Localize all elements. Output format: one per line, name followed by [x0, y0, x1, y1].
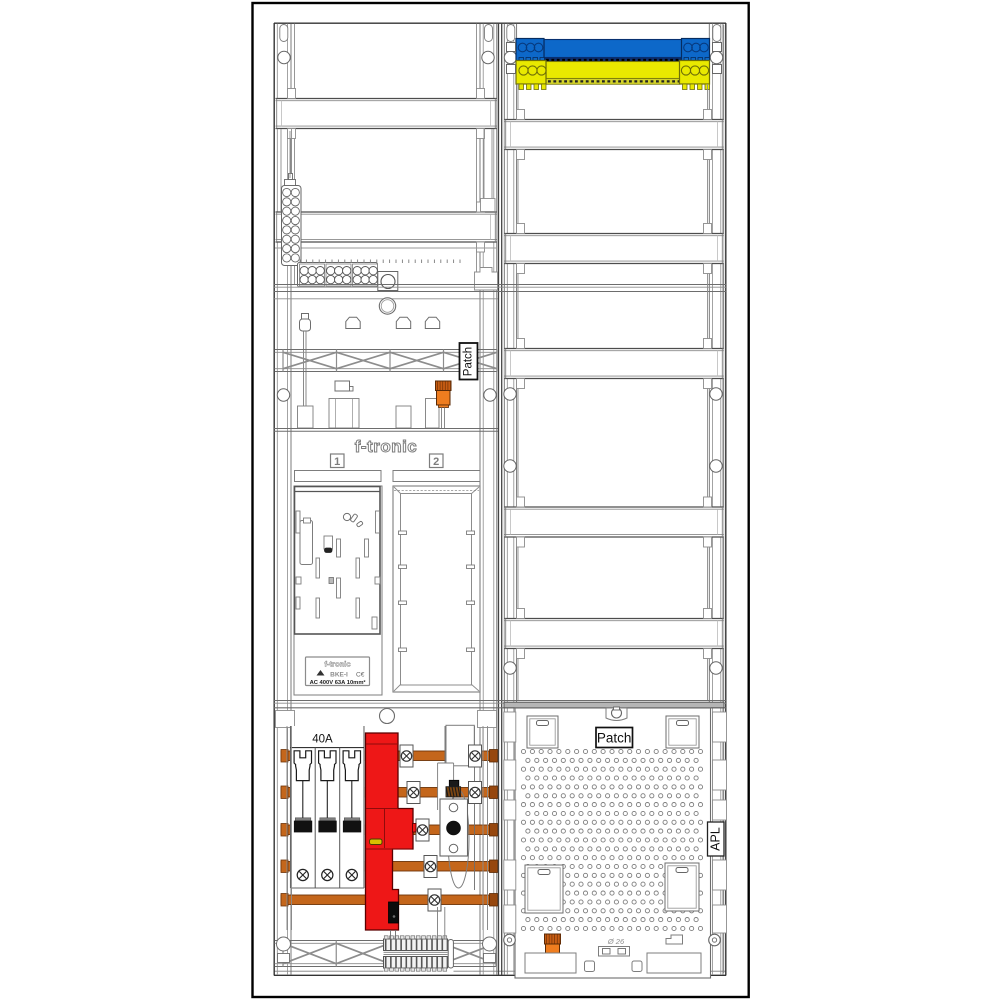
- svg-text:Patch: Patch: [597, 731, 632, 746]
- svg-text:2: 2: [433, 456, 439, 468]
- svg-text:BKE-I: BKE-I: [330, 672, 348, 679]
- svg-text:C€: C€: [356, 672, 365, 679]
- svg-text:Ø 26: Ø 26: [607, 937, 625, 946]
- svg-text:40A: 40A: [312, 734, 333, 746]
- svg-text:AC 400V 63A 10mm²: AC 400V 63A 10mm²: [310, 679, 366, 686]
- svg-text:APL: APL: [709, 827, 723, 851]
- svg-text:Patch: Patch: [463, 347, 475, 376]
- svg-text:f-tronic: f-tronic: [324, 660, 350, 669]
- svg-text:1: 1: [334, 456, 340, 468]
- svg-text:f-tronic: f-tronic: [355, 437, 418, 456]
